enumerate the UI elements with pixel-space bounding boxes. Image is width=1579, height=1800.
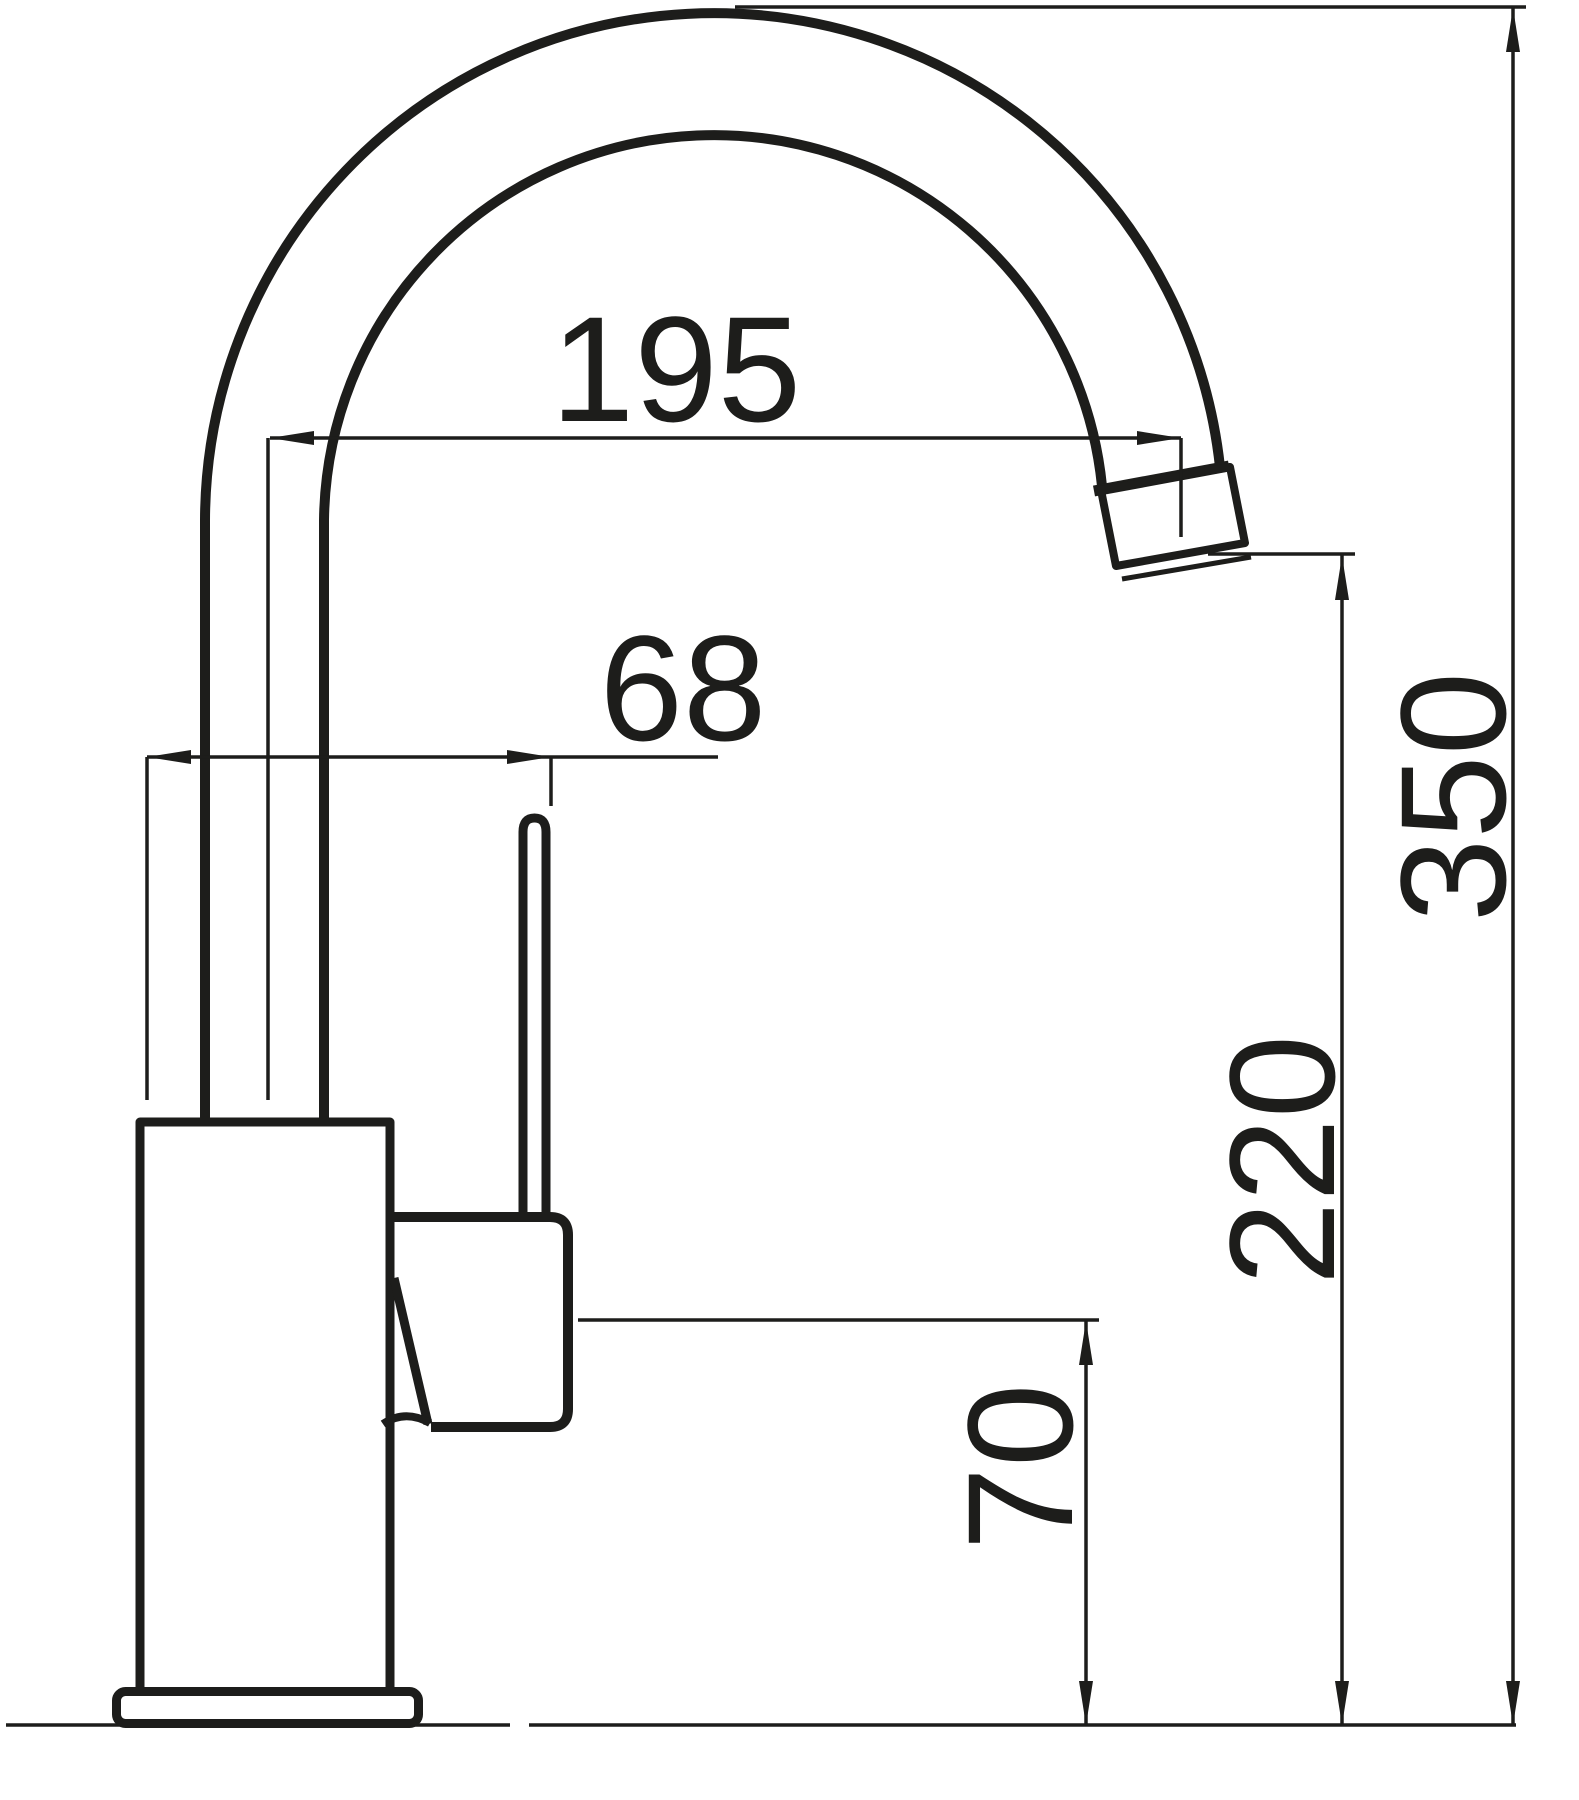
dimension-spout-outlet-height: 220 xyxy=(1198,554,1366,1725)
arrowhead-left-icon xyxy=(270,431,314,445)
handle-cartridge-housing xyxy=(390,1217,568,1427)
dim-label-70: 70 xyxy=(936,1384,1104,1551)
dim-label-195: 195 xyxy=(551,285,801,453)
arrowhead-right-icon xyxy=(507,750,551,764)
arrowhead-up-icon xyxy=(1079,1321,1093,1365)
dim-label-220: 220 xyxy=(1198,1035,1366,1285)
arrowhead-up-icon xyxy=(1335,556,1349,600)
dimension-handle-pivot-height: 70 xyxy=(578,1320,1104,1725)
dimension-handle-offset: 68 xyxy=(147,604,766,1100)
drawing-canvas: 195 68 350 220 xyxy=(0,0,1579,1800)
housing-underside-curve xyxy=(383,1416,430,1424)
arrowhead-up-icon xyxy=(1506,8,1520,52)
gooseneck-outer-profile xyxy=(205,13,1220,1124)
arrowhead-down-icon xyxy=(1335,1681,1349,1725)
dim-label-350: 350 xyxy=(1369,672,1537,922)
dim-label-68: 68 xyxy=(600,604,767,772)
arrowhead-down-icon xyxy=(1506,1681,1520,1725)
arrowhead-down-icon xyxy=(1079,1681,1093,1725)
housing-front-diagonal xyxy=(394,1278,428,1424)
dimension-overall-height: 350 xyxy=(735,7,1537,1725)
handle-lever-rod xyxy=(523,818,546,1215)
base-flange xyxy=(117,1692,419,1724)
mixer-body xyxy=(140,1122,390,1691)
arrowhead-right-icon xyxy=(1137,431,1181,445)
arrowhead-left-icon xyxy=(147,750,191,764)
faucet-dimension-drawing: 195 68 350 220 xyxy=(0,0,1579,1800)
